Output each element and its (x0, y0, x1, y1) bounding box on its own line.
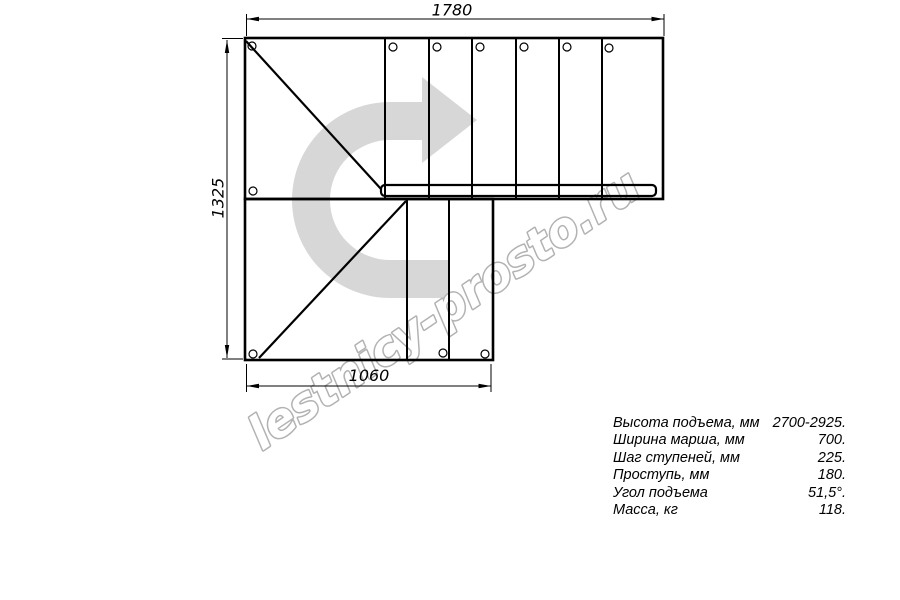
spec-label: Проступь, мм (613, 467, 709, 484)
spec-value: 225. (818, 450, 846, 467)
spec-row-step-pitch: Шаг ступеней, мм 225. (613, 450, 846, 467)
spec-value: 118. (819, 502, 846, 519)
dim-arrow-up (225, 40, 229, 53)
spec-value: 700. (818, 432, 846, 449)
dim-arrow-down (225, 345, 229, 358)
dimension-bottom-label: 1060 (349, 366, 390, 385)
spec-row-tread: Проступь, мм 180. (613, 467, 846, 484)
spec-row-mass: Масса, кг 118. (613, 502, 846, 519)
dim-arrow-right (652, 17, 665, 21)
spec-label: Угол подъема (613, 485, 708, 502)
dim-arrow-left (247, 384, 260, 388)
spec-label: Высота подъема, мм (613, 415, 760, 432)
spec-label: Ширина марша, мм (613, 432, 745, 449)
spec-row-rise-height: Высота подъема, мм 2700-2925. (613, 415, 846, 432)
dim-arrow-right (479, 384, 492, 388)
dimension-top-label: 1780 (432, 1, 473, 20)
spec-row-climb-angle: Угол подъема 51,5°. (613, 485, 846, 502)
stair-drawing-canvas: lestnicy-prosto.ru (0, 0, 900, 600)
spec-row-flight-width: Ширина марша, мм 700. (613, 432, 846, 449)
dim-arrow-left (247, 17, 260, 21)
spec-value: 51,5°. (808, 485, 846, 502)
spec-table: Высота подъема, мм 2700-2925. Ширина мар… (613, 415, 846, 519)
spec-label: Масса, кг (613, 502, 678, 519)
spec-value: 180. (818, 467, 846, 484)
dimension-left-label: 1325 (209, 178, 228, 219)
spec-value: 2700-2925. (773, 415, 846, 432)
spec-label: Шаг ступеней, мм (613, 450, 740, 467)
